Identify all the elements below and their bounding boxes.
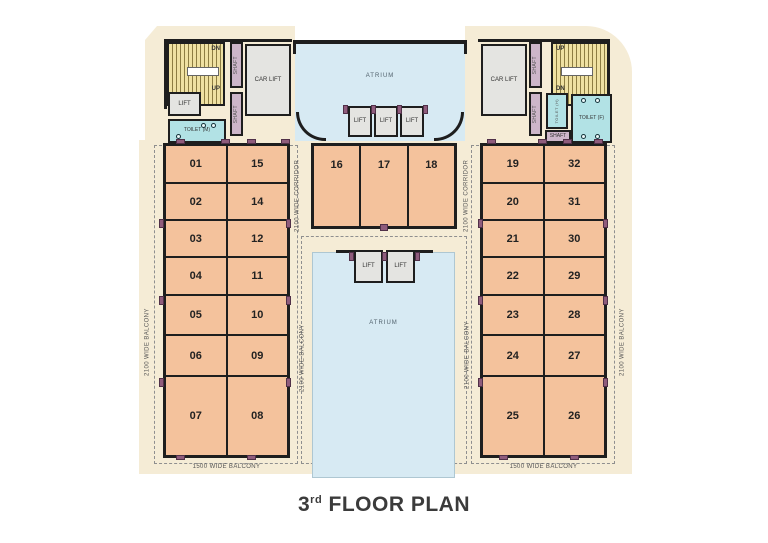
wall-marker — [247, 139, 256, 144]
toilet-fixture — [581, 134, 586, 139]
stair-dn-label: DN — [211, 46, 220, 52]
lift-label: LIFT — [394, 263, 406, 270]
wall-marker — [570, 455, 579, 460]
wall-marker — [478, 219, 483, 228]
wall-marker — [349, 252, 354, 261]
stair-landing — [561, 67, 593, 76]
unit-30: 30 — [545, 221, 605, 256]
balcony-label-left-outer: 2100 WIDE BALCONY — [142, 292, 153, 392]
title-ordinal: rd — [310, 494, 322, 506]
wall-marker — [371, 105, 376, 114]
toilet-women-label: TOILET (F) — [579, 116, 604, 122]
toilet-fixture — [201, 123, 206, 128]
lift-label: LIFT — [354, 118, 366, 125]
lift-atrium-2: LIFT — [374, 106, 398, 137]
wall-marker — [415, 252, 420, 261]
lift-atrium-3: LIFT — [400, 106, 424, 137]
car-lift-label: CAR LIFT — [491, 77, 518, 84]
toilet-handicap-label: TOILET (H) — [555, 99, 559, 124]
unit-05: 05 — [166, 296, 226, 334]
lift-label: LIFT — [406, 118, 418, 125]
unit-15: 15 — [228, 146, 288, 182]
toilet-fixture — [595, 98, 600, 103]
wall-marker — [423, 105, 428, 114]
wall-marker — [247, 455, 256, 460]
shaft-label: SHAFT — [533, 105, 539, 123]
unit-07: 07 — [166, 377, 226, 455]
shaft-left-1: SHAFT — [230, 42, 243, 88]
atrium-top-label: ATRIUM — [295, 73, 465, 79]
atrium-center — [312, 252, 455, 478]
unit-grid-right: 19 32 20 31 21 30 22 29 23 28 24 27 25 2… — [480, 143, 607, 458]
wall-stub-left — [293, 40, 296, 54]
unit-09: 09 — [228, 336, 288, 375]
wall-marker — [594, 139, 603, 144]
title-floor-number: 3 — [298, 493, 310, 516]
unit-31: 31 — [545, 184, 605, 219]
unit-22: 22 — [483, 258, 543, 294]
wall-marker — [487, 139, 496, 144]
toilet-fixture — [581, 98, 586, 103]
unit-23: 23 — [483, 296, 543, 334]
shaft-right-2: SHAFT — [529, 92, 542, 136]
unit-02: 02 — [166, 184, 226, 219]
balcony-label-right-outer: 2100 WIDE BALCONY — [617, 292, 628, 392]
stair-dn-label: DN — [556, 86, 565, 92]
balcony-label-bottom-left: 1500 WIDE BALCONY — [163, 464, 290, 470]
shaft-left-2: SHAFT — [230, 92, 243, 136]
title-text: FLOOR PLAN — [322, 493, 470, 516]
wall-marker — [603, 296, 608, 305]
stair-landing — [187, 67, 219, 76]
shaft-label: SHAFT — [533, 56, 539, 74]
wall-marker — [176, 455, 185, 460]
unit-19: 19 — [483, 146, 543, 182]
unit-32: 32 — [545, 146, 605, 182]
wall-marker — [538, 139, 547, 144]
wall-marker — [397, 105, 402, 114]
toilet-women: TOILET (F) — [571, 94, 612, 143]
car-lift-label: CAR LIFT — [255, 77, 282, 84]
shaft-label: SHAFT — [234, 105, 240, 123]
unit-03: 03 — [166, 221, 226, 256]
unit-10: 10 — [228, 296, 288, 334]
unit-28: 28 — [545, 296, 605, 334]
wall-marker — [286, 219, 291, 228]
wall-marker — [603, 378, 608, 387]
unit-grid-left: 01 15 02 14 03 12 04 11 05 10 06 09 07 0… — [163, 143, 290, 458]
wall-marker — [382, 252, 387, 261]
shaft-right-1: SHAFT — [529, 42, 542, 88]
balcony-label-bottom-right: 1500 WIDE BALCONY — [480, 464, 607, 470]
corridor-label-right: 2100 WIDE CORRIDOR — [461, 150, 472, 242]
unit-25: 25 — [483, 377, 543, 455]
lift-atrium-1: LIFT — [348, 106, 372, 137]
floor-plan-canvas: ATRIUM ATRIUM DN UP UP DN SHAFT SHAFT SH… — [0, 0, 768, 543]
wall-marker — [499, 455, 508, 460]
wall-marker — [286, 296, 291, 305]
car-lift-right: CAR LIFT — [481, 44, 527, 116]
stair-up-label: UP — [556, 46, 564, 52]
unit-27: 27 — [545, 336, 605, 375]
wall-marker — [478, 378, 483, 387]
unit-24: 24 — [483, 336, 543, 375]
lift-center-1: LIFT — [354, 250, 383, 283]
page-title: 3rd FLOOR PLAN — [284, 493, 484, 517]
unit-06: 06 — [166, 336, 226, 375]
unit-17: 17 — [361, 146, 406, 226]
atrium-center-label: ATRIUM — [312, 320, 455, 326]
wall-marker — [603, 219, 608, 228]
unit-14: 14 — [228, 184, 288, 219]
wall-marker — [478, 296, 483, 305]
lift-label: LIFT — [362, 263, 374, 270]
balcony-label-right-inner: 2100 WIDE BALCONY — [462, 305, 473, 405]
unit-04: 04 — [166, 258, 226, 294]
toilet-men-label: TOILET (M) — [184, 128, 210, 134]
wall-marker — [221, 139, 230, 144]
toilet-fixture — [211, 123, 216, 128]
unit-20: 20 — [483, 184, 543, 219]
lift-label: LIFT — [178, 101, 190, 108]
wall-marker — [286, 378, 291, 387]
car-lift-left: CAR LIFT — [245, 44, 291, 116]
wall-marker — [159, 219, 164, 228]
unit-11: 11 — [228, 258, 288, 294]
unit-21: 21 — [483, 221, 543, 256]
lift-center-2: LIFT — [386, 250, 415, 283]
unit-12: 12 — [228, 221, 288, 256]
unit-18: 18 — [409, 146, 454, 226]
wall-marker — [281, 139, 290, 144]
unit-01: 01 — [166, 146, 226, 182]
wall-marker — [343, 105, 348, 114]
unit-16: 16 — [314, 146, 359, 226]
lift-label: LIFT — [380, 118, 392, 125]
unit-29: 29 — [545, 258, 605, 294]
wall-stub-right — [464, 40, 467, 54]
lift-top-left: LIFT — [168, 92, 201, 116]
balcony-label-left-inner: 2100 WIDE BALCONY — [297, 308, 308, 408]
unit-grid-center: 16 17 18 — [311, 143, 457, 229]
wall-marker — [563, 139, 572, 144]
toilet-handicap: TOILET (H) — [546, 93, 568, 129]
wall-marker — [380, 224, 388, 231]
wall-marker — [159, 296, 164, 305]
stair-up-label: UP — [212, 86, 220, 92]
wall-marker — [159, 378, 164, 387]
wall-marker — [176, 139, 185, 144]
unit-26: 26 — [545, 377, 605, 455]
unit-08: 08 — [228, 377, 288, 455]
corridor-label-left: 2100 WIDE CORRIDOR — [292, 150, 303, 242]
shaft-label: SHAFT — [234, 56, 240, 74]
